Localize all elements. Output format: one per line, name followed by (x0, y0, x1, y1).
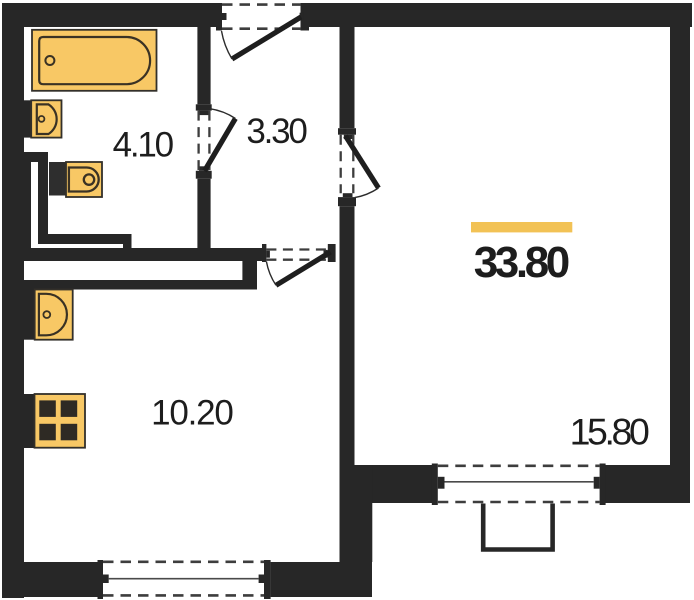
svg-text:10.20: 10.20 (151, 394, 233, 433)
svg-text:15.80: 15.80 (570, 411, 649, 453)
svg-text:4.10: 4.10 (113, 125, 174, 164)
svg-text:3.30: 3.30 (246, 112, 307, 151)
svg-text:33.80: 33.80 (474, 238, 569, 287)
